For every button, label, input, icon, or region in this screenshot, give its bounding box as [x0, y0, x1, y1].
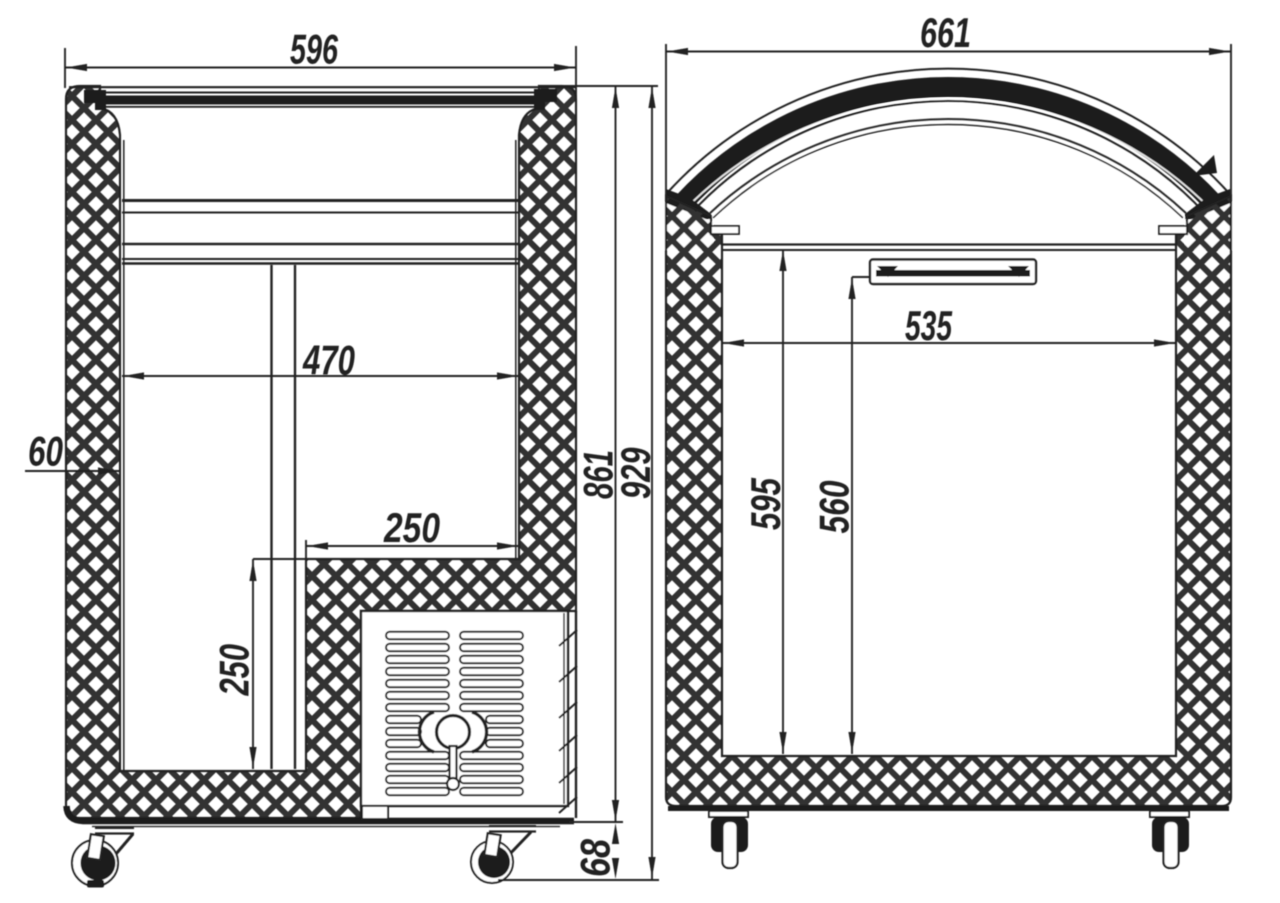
svg-text:535: 535: [905, 302, 952, 349]
svg-text:661: 661: [920, 9, 971, 56]
svg-text:470: 470: [302, 337, 355, 384]
svg-text:60: 60: [28, 428, 63, 475]
svg-text:68: 68: [572, 838, 619, 877]
svg-text:560: 560: [811, 481, 858, 534]
svg-text:595: 595: [742, 478, 789, 530]
svg-text:929: 929: [612, 447, 659, 499]
svg-text:250: 250: [211, 644, 258, 696]
svg-text:596: 596: [290, 26, 338, 73]
svg-text:250: 250: [383, 504, 440, 551]
